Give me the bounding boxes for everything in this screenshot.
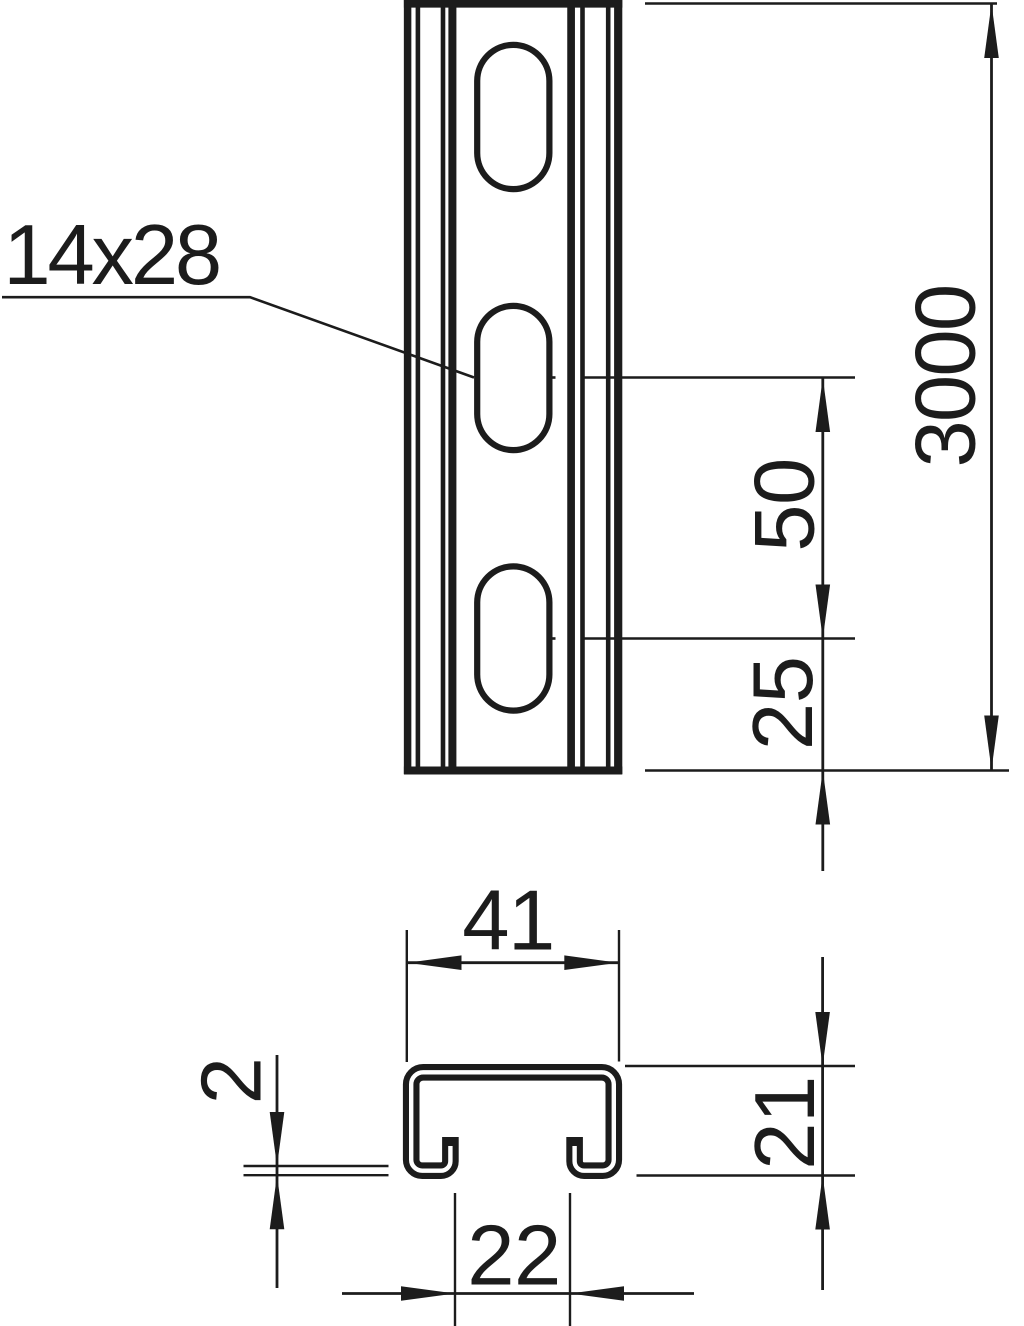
svg-text:22: 22 <box>467 1208 561 1303</box>
svg-text:21: 21 <box>738 1076 833 1170</box>
svg-text:41: 41 <box>462 874 554 969</box>
svg-text:2: 2 <box>185 1057 280 1104</box>
svg-text:3000: 3000 <box>899 286 994 468</box>
svg-text:14x28: 14x28 <box>3 208 219 303</box>
svg-text:50: 50 <box>738 458 833 552</box>
svg-text:25: 25 <box>736 657 831 751</box>
